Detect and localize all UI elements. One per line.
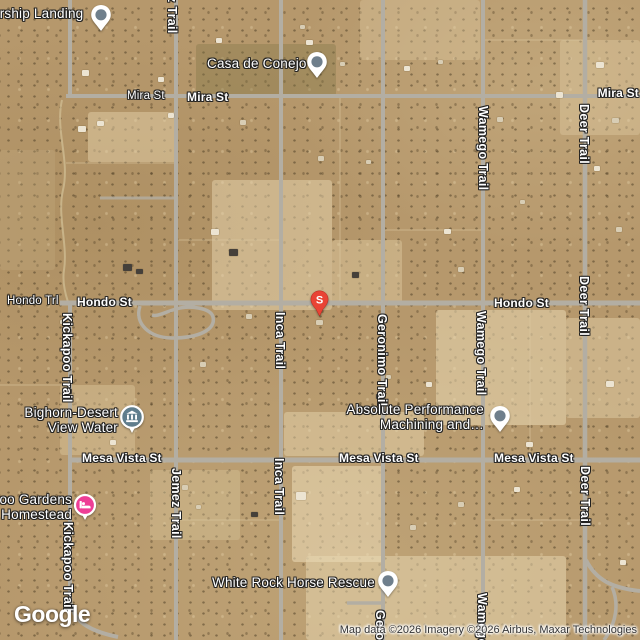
road-label-kickapoo-2: Kickapoo Trail bbox=[61, 522, 75, 612]
road-label-geronimo: Geronimo Trail bbox=[375, 314, 389, 406]
building-roof bbox=[514, 487, 520, 492]
building-roof bbox=[316, 320, 323, 325]
building-roof bbox=[306, 40, 313, 45]
building-roof bbox=[240, 120, 246, 125]
road-label-mesa-right: Mesa Vista St bbox=[494, 451, 574, 465]
road-label-inca-1: Inca Trail bbox=[273, 312, 287, 369]
poi-label-bighorn-desert-view-water: Bighorn-Desert View Water bbox=[24, 406, 118, 435]
building-roof bbox=[110, 440, 116, 445]
building-roof bbox=[404, 66, 410, 71]
building-roof bbox=[596, 62, 604, 68]
lodging-icon[interactable] bbox=[73, 493, 97, 523]
building-roof bbox=[136, 269, 143, 274]
poi-label-line: View Water bbox=[24, 421, 118, 436]
building-roof bbox=[300, 25, 305, 29]
map-canvas[interactable]: Mira St Mira St Mira St Hondo Trl Hondo … bbox=[0, 0, 640, 640]
building-roof bbox=[594, 166, 600, 171]
building-roof bbox=[246, 314, 252, 319]
poi-label-starship-landing: arship Landing bbox=[0, 7, 83, 22]
road-label-wamego-1: Wamego Trail bbox=[476, 106, 490, 190]
building-roof bbox=[97, 121, 104, 126]
building-roof bbox=[158, 77, 164, 82]
dirt-trail bbox=[60, 100, 68, 302]
marker-letter: S bbox=[316, 294, 323, 306]
building-roof bbox=[444, 229, 451, 234]
road-label-mira-center: Mira St bbox=[187, 90, 228, 104]
building-roof bbox=[612, 118, 619, 123]
poi-label-line: Bighorn-Desert bbox=[24, 406, 118, 421]
road-label-mira-left: Mira St bbox=[127, 90, 165, 102]
building-roof bbox=[211, 229, 219, 235]
road-kickapoo bbox=[70, 303, 118, 637]
place-pin-white-rock-horse-rescue[interactable] bbox=[377, 570, 399, 599]
building-roof bbox=[426, 382, 432, 387]
building-roof bbox=[318, 156, 324, 161]
building-roof bbox=[251, 512, 258, 517]
google-logo[interactable]: Google bbox=[14, 601, 90, 628]
road-label-wamego-2: Wamego Trail bbox=[474, 311, 488, 395]
place-pin-casa-de-conejo[interactable] bbox=[306, 51, 328, 80]
building-roof bbox=[123, 264, 132, 271]
building-roof bbox=[458, 502, 464, 507]
map-attribution: Map data ©2026 Imagery ©2026 Airbus, Max… bbox=[340, 624, 637, 636]
building-roof bbox=[340, 62, 345, 66]
road-label-deer-1: Deer Trail bbox=[577, 104, 591, 164]
building-roof bbox=[296, 492, 306, 500]
road-label-hondo-trl: Hondo Trl bbox=[7, 295, 59, 307]
building-roof bbox=[620, 560, 626, 565]
building-roof bbox=[366, 160, 371, 164]
road-label-mesa-left: Mesa Vista St bbox=[82, 451, 162, 465]
building-roof bbox=[82, 70, 89, 76]
road-curve-se1 bbox=[586, 560, 640, 591]
road-label-mesa-center: Mesa Vista St bbox=[339, 451, 419, 465]
building-roof bbox=[526, 442, 533, 447]
poi-label-absolute-performance: Absolute Performance Machining and… bbox=[346, 403, 484, 432]
building-roof bbox=[410, 525, 416, 530]
poi-label-line: oo Gardens bbox=[0, 493, 72, 508]
building-roof bbox=[556, 92, 563, 98]
building-roof bbox=[168, 113, 174, 118]
building-roof bbox=[216, 38, 222, 43]
building-roof bbox=[458, 267, 464, 272]
building-roof bbox=[606, 381, 614, 387]
road-label-inca-2: Inca Trail bbox=[272, 458, 286, 515]
building-roof bbox=[352, 272, 359, 278]
road-label-deer-3: Deer Trail bbox=[578, 466, 592, 526]
building-roof bbox=[616, 227, 622, 232]
building-roof bbox=[196, 505, 201, 509]
road-label-jemez: Jemez Trail bbox=[169, 468, 183, 539]
red-s-marker[interactable]: S bbox=[310, 290, 329, 317]
place-pin-absolute-performance[interactable] bbox=[489, 405, 511, 434]
parcel-lines bbox=[0, 40, 585, 520]
building-roof bbox=[229, 249, 238, 256]
road-label-kickapoo-1: Kickapoo Trail bbox=[60, 313, 74, 403]
building-roof bbox=[78, 126, 86, 132]
road-label-hondo-center: Hondo St bbox=[77, 295, 132, 309]
building-roof bbox=[520, 200, 525, 204]
poi-label-line: Homestead bbox=[0, 508, 72, 523]
water-utility-icon[interactable] bbox=[119, 404, 145, 435]
building-roof bbox=[497, 117, 503, 122]
road-label-deer-2: Deer Trail bbox=[577, 276, 591, 336]
road-label-mira-right: Mira St bbox=[598, 86, 639, 100]
road-label-jemez-top: z Trail bbox=[165, 0, 179, 34]
poi-label-gardens-homestead: oo Gardens Homestead bbox=[0, 493, 72, 522]
building-roof bbox=[200, 362, 206, 367]
place-pin-starship-landing[interactable] bbox=[90, 4, 112, 33]
poi-label-white-rock-horse-rescue: White Rock Horse Rescue bbox=[212, 576, 375, 591]
building-roof bbox=[438, 60, 443, 64]
poi-label-line: Absolute Performance bbox=[346, 403, 484, 418]
road-label-hondo-right: Hondo St bbox=[494, 296, 549, 310]
poi-label-line: Machining and… bbox=[346, 418, 484, 433]
poi-label-casa-de-conejo: Casa de Conejo bbox=[207, 57, 307, 72]
